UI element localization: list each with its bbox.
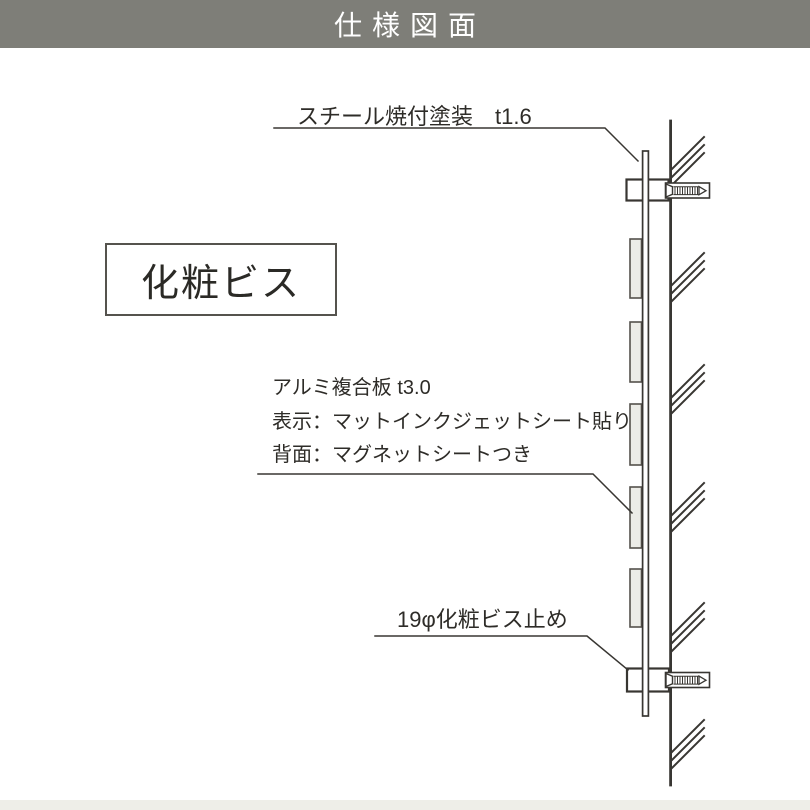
bottom-screw-label: 19φ化粧ビス止め [397,602,568,634]
leader-line-bottom-screw [375,636,628,670]
wall-hatch [671,137,704,186]
footer-bar [0,800,810,810]
magnet-pad [630,487,642,548]
decorative-screw-label: 化粧ビス [141,252,301,307]
wall-hatch [671,720,704,769]
panel-spec-line-2: 表示：マットインクジェットシート貼り [272,405,632,434]
specification-drawing-page: 仕様図面 [0,0,810,810]
wall-hatch [671,365,704,414]
decorative-screw-label-box: 化粧ビス [105,243,337,316]
wall-hatch [671,253,704,302]
wall-hatch [671,483,704,532]
magnet-pad [630,322,642,382]
leader-line-steel [274,128,638,161]
leader-line-panel [258,474,632,513]
magnet-pad [630,239,642,298]
steel-paint-label: スチール焼付塗装 t1.6 [297,99,532,131]
bottom-screw [666,673,710,688]
wall-hatch [671,603,704,652]
top-screw-head [666,184,673,197]
panel-spec-line-1: アルミ複合板 t3.0 [272,371,431,400]
top-screw [666,183,710,198]
steel-panel-line [643,151,649,716]
panel-spec-line-3: 背面：マグネットシートつき [272,438,532,467]
bottom-screw-head [666,674,673,687]
magnet-pad [630,569,642,627]
